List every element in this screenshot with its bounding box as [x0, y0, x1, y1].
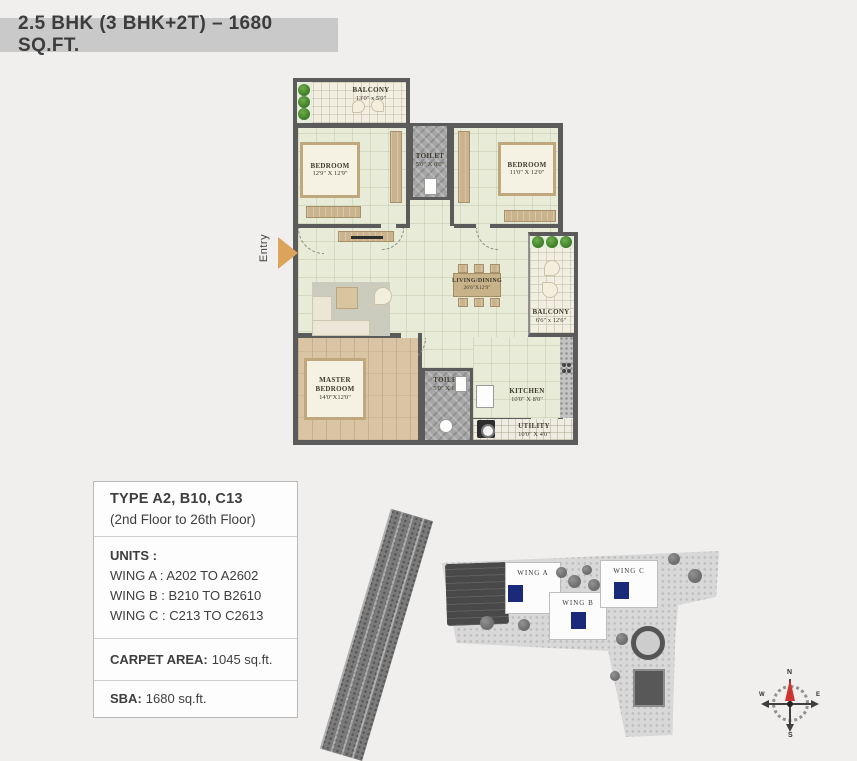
room-label-balcony-right: BALCONY 6'6" x 12'6"	[531, 308, 571, 325]
tree-icon	[588, 579, 600, 591]
entry-arrow-icon	[278, 237, 298, 269]
tree-icon	[480, 616, 494, 630]
plant-icon	[532, 236, 544, 248]
tree-icon	[668, 553, 680, 565]
dining-chair	[474, 298, 484, 307]
info-section-carpet: CARPET AREA: 1045 sq.ft.	[94, 639, 297, 681]
info-section-sba: SBA: 1680 sq.ft.	[94, 681, 297, 717]
kitchen-counter	[560, 337, 573, 418]
compass-w-label: W	[759, 692, 765, 698]
plant-icon	[560, 236, 572, 248]
wall	[490, 224, 563, 228]
highlighted-unit-a	[508, 585, 523, 602]
highlighted-unit-c	[614, 582, 629, 599]
amenity-block	[633, 669, 665, 707]
sofa	[312, 320, 370, 336]
dining-chair	[458, 298, 468, 307]
units-wing-c: WING C : C213 TO C2613	[110, 606, 281, 626]
info-section-units: UNITS : WING A : A202 TO A2602 WING B : …	[94, 537, 297, 639]
plant-icon	[298, 96, 310, 108]
utility-floor: UTILITY 10'0" X 4'0"	[473, 419, 573, 440]
bed-left-bedroom: BEDROOM 12'9" X 12'9"	[300, 142, 360, 198]
lawn-circle	[631, 626, 665, 660]
tree-icon	[582, 565, 592, 575]
stove-icon	[562, 363, 566, 367]
compass-west-arrow	[761, 700, 769, 708]
units-label: UNITS :	[110, 546, 281, 566]
compass-n-label: N	[787, 669, 792, 676]
wall	[561, 440, 578, 445]
balcony-right: BALCONY 6'6" x 12'6"	[528, 232, 578, 337]
toilet-top: TOILET 5'0" X 8'0"	[410, 123, 450, 200]
balcony-chair	[544, 260, 560, 276]
room-label-utility: UTILITY 10'0" X 4'0"	[505, 422, 563, 439]
fridge-icon	[476, 385, 494, 408]
plant-icon	[298, 84, 310, 96]
room-label-kitchen: KITCHEN 10'0" X 8'0"	[497, 387, 557, 404]
tv-console	[338, 231, 394, 242]
stove-icon	[562, 369, 566, 373]
sink-icon	[455, 376, 467, 392]
carpet-area-label: CARPET AREA:	[110, 650, 208, 670]
compass-icon: N S E W	[761, 672, 821, 742]
tree-icon	[688, 569, 702, 583]
sink-icon	[424, 178, 437, 195]
wall	[406, 123, 410, 226]
room-label-balcony-top: BALCONY 13'0" x 5'0"	[335, 86, 407, 103]
wall	[454, 224, 476, 228]
site-key-plan: WING A WING B WING C	[388, 521, 738, 745]
tree-icon	[610, 671, 620, 681]
wing-c-label: WING C	[613, 567, 644, 575]
stove-icon	[567, 363, 571, 367]
dining-chair	[490, 298, 500, 307]
bed-right-bedroom: BEDROOM 11'0" X 12'0"	[498, 142, 556, 196]
planter-strip	[297, 82, 312, 123]
room-label-bedroom-left: BEDROOM 12'9" X 12'9"	[310, 162, 349, 179]
units-wing-a: WING A : A202 TO A2602	[110, 566, 281, 586]
wardrobe	[390, 131, 402, 203]
wing-b-label: WING B	[562, 599, 593, 607]
balcony-chair	[542, 282, 558, 298]
sba-value: 1680 sq.ft.	[146, 689, 207, 709]
wall	[450, 123, 454, 226]
highlighted-unit-b	[571, 612, 586, 629]
dining-chair	[474, 264, 484, 273]
compass-south-arrow	[786, 724, 794, 732]
page-title: 2.5 BHK (3 BHK+2T) – 1680 SQ.FT.	[0, 13, 338, 57]
compass-east-arrow	[811, 700, 819, 708]
wardrobe	[458, 131, 470, 203]
armchair	[374, 287, 392, 305]
unit-info-box: TYPE A2, B10, C13 (2nd Floor to 26th Flo…	[93, 481, 298, 718]
title-bar: 2.5 BHK (3 BHK+2T) – 1680 SQ.FT.	[0, 18, 338, 52]
wardrobe	[306, 206, 361, 218]
plant-icon	[298, 108, 310, 120]
dining-table: LIVING/DINING 26'6"X12'9"	[453, 273, 501, 297]
toilet-bottom: TOILET 5'0" X 8'0"	[422, 368, 473, 443]
parking-block	[445, 562, 509, 626]
units-wing-b: WING B : B210 TO B2610	[110, 586, 281, 606]
room-label-master-bedroom: MASTER BEDROOM 14'0"X12'0"	[308, 376, 363, 402]
tree-icon	[518, 619, 530, 631]
compass-north-needle	[785, 679, 795, 701]
room-label-toilet-top: TOILET 5'0" X 8'0"	[414, 152, 446, 169]
tv-icon	[351, 236, 383, 239]
room-label-bedroom-right: BEDROOM 11'0" X 12'0"	[507, 161, 546, 178]
plant-icon	[546, 236, 558, 248]
sba-label: SBA:	[110, 689, 142, 709]
wall	[573, 337, 578, 445]
compass-center	[787, 701, 793, 707]
bed-master-bedroom: MASTER BEDROOM 14'0"X12'0"	[304, 358, 366, 420]
planter-strip	[530, 236, 574, 248]
toilet-icon	[439, 419, 453, 433]
compass-s-label: S	[788, 732, 793, 739]
stove-icon	[567, 369, 571, 373]
building-wing-c: WING C	[601, 561, 657, 607]
wing-a-label: WING A	[517, 569, 548, 577]
kitchen-floor: KITCHEN 10'0" X 8'0"	[473, 337, 573, 418]
info-section-type: TYPE A2, B10, C13 (2nd Floor to 26th Flo…	[94, 482, 297, 537]
balcony-top: BALCONY 13'0" x 5'0"	[293, 78, 410, 123]
floor-plan: BALCONY 13'0" x 5'0" TOILET 5'0" X 8'0" …	[278, 76, 588, 454]
tree-icon	[568, 575, 581, 588]
dining-chair	[458, 264, 468, 273]
tree-icon	[616, 633, 628, 645]
type-title: TYPE A2, B10, C13	[110, 491, 281, 507]
tree-icon	[556, 567, 567, 578]
compass-e-label: E	[816, 692, 820, 698]
wardrobe	[504, 210, 556, 222]
floor-range: (2nd Floor to 26th Floor)	[110, 512, 281, 527]
building-wing-b: WING B	[550, 593, 606, 639]
road	[320, 509, 433, 761]
carpet-area-value: 1045 sq.ft.	[212, 650, 273, 670]
washing-machine-icon	[477, 420, 495, 438]
dining-chair	[490, 264, 500, 273]
coffee-table	[336, 287, 358, 309]
entry-label: Entry	[258, 234, 270, 262]
room-label-living-dining: LIVING/DINING 26'6"X12'9"	[452, 278, 502, 292]
